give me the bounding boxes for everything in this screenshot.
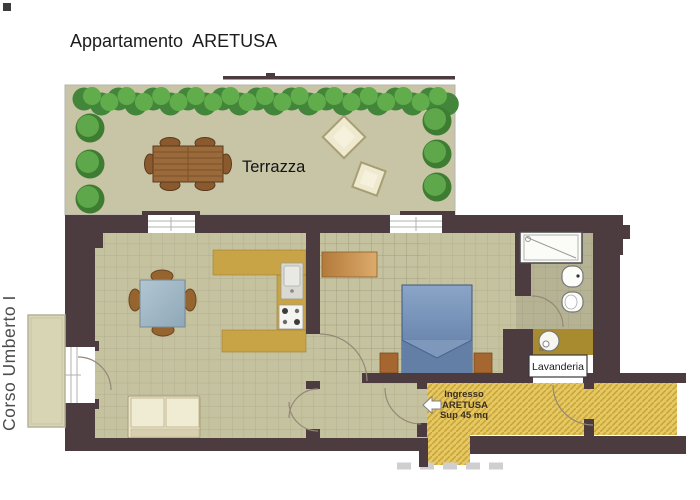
bedroom-window <box>390 215 442 233</box>
washing-machine <box>539 331 559 351</box>
entrance-line3: Sup 45 mq <box>440 410 488 421</box>
street-label: Corso Umberto I <box>0 295 19 431</box>
dining-chair <box>184 289 196 311</box>
bush-icon <box>291 87 309 105</box>
balcony-window <box>65 347 95 403</box>
window-jamb <box>442 216 453 229</box>
terrace-top-tab <box>266 73 275 78</box>
bush-icon <box>152 87 170 105</box>
bush-icon <box>187 87 205 105</box>
bush-icon <box>77 186 99 208</box>
bush-icon <box>343 93 361 111</box>
bush-icon <box>100 93 118 111</box>
bush-icon <box>424 141 446 163</box>
wardrobe <box>322 252 377 277</box>
bush-icon <box>77 151 99 173</box>
bush-icon <box>429 87 447 105</box>
kitchen-stove <box>279 305 303 329</box>
nightstand <box>474 353 492 373</box>
terrace-label: Terrazza <box>242 158 306 176</box>
laundry-label-box: Lavanderia <box>529 355 587 377</box>
bush-icon <box>360 87 378 105</box>
bush-icon <box>77 115 99 137</box>
bidet <box>562 292 583 312</box>
shower <box>520 232 582 263</box>
toilet <box>562 266 583 287</box>
bush-icon <box>221 87 239 105</box>
laundry-door-threshold <box>534 377 583 383</box>
window-jamb <box>379 216 390 229</box>
bush-icon <box>308 93 326 111</box>
living-room-window <box>148 215 195 233</box>
bush-icon <box>204 93 222 111</box>
bush-icon <box>377 93 395 111</box>
bush-icon <box>135 93 153 111</box>
bush-icon <box>424 108 446 130</box>
bush-icon <box>412 93 430 111</box>
terrace: Terrazza <box>65 73 459 215</box>
bush-icon <box>325 87 343 105</box>
nightstand <box>380 353 398 373</box>
window-jamb <box>137 216 148 229</box>
bush-icon <box>239 93 257 111</box>
balcony <box>28 315 65 427</box>
bush-icon <box>83 87 101 105</box>
bush-icon <box>273 93 291 111</box>
corner-marker <box>3 3 11 11</box>
bush-icon <box>394 87 412 105</box>
dining-table-top <box>140 280 185 327</box>
page-title: Appartamento ARETUSA <box>70 31 277 51</box>
kitchen-sink <box>281 263 303 299</box>
entrance-line1: Ingresso <box>444 389 484 400</box>
laundry-label: Lavanderia <box>532 361 584 373</box>
bush-icon <box>118 87 136 105</box>
sofa <box>128 396 200 438</box>
entrance-label: Ingresso ARETUSA Sup 45 mq <box>440 389 488 421</box>
window-jamb <box>195 216 206 229</box>
terrace-top-edge <box>223 76 455 80</box>
double-bed <box>402 285 472 373</box>
dining-chair <box>129 289 141 311</box>
bush-icon <box>424 174 446 196</box>
bush-icon <box>256 87 274 105</box>
bush-icon <box>170 93 188 111</box>
floor-plan: Appartamento ARETUSA Corso Umberto I Te <box>0 0 700 500</box>
